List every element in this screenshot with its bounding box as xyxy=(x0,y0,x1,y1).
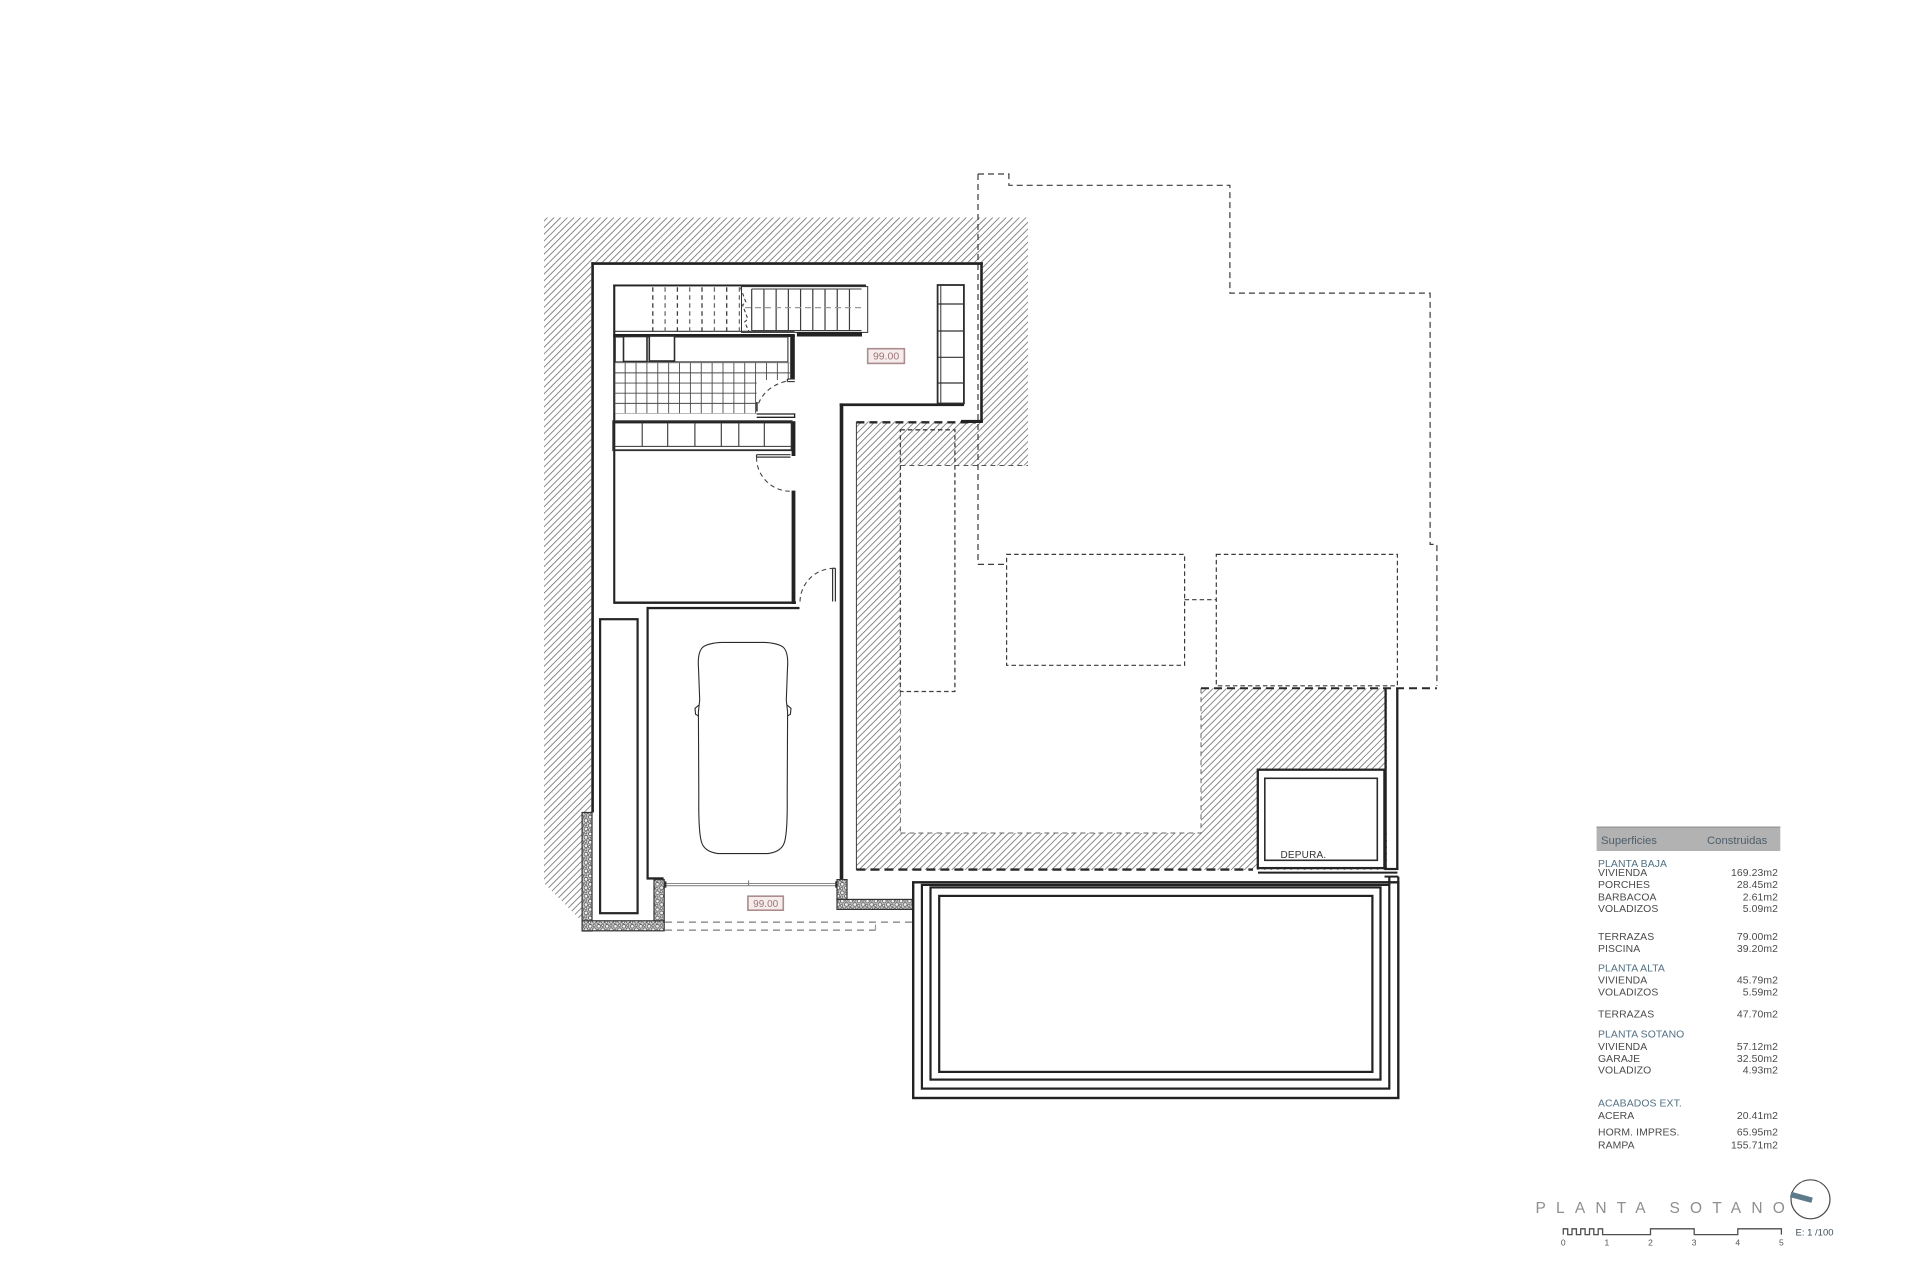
svg-text:VOLADIZOS: VOLADIZOS xyxy=(1598,988,1658,999)
svg-text:ACABADOS EXT.: ACABADOS EXT. xyxy=(1598,1099,1682,1110)
svg-text:PLANTA ALTA: PLANTA ALTA xyxy=(1598,964,1665,975)
svg-text:28.45m2: 28.45m2 xyxy=(1737,880,1778,891)
svg-text:ACERA: ACERA xyxy=(1598,1111,1634,1122)
svg-text:2.61m2: 2.61m2 xyxy=(1743,893,1778,904)
svg-text:5: 5 xyxy=(1779,1238,1784,1248)
svg-text:Construidas: Construidas xyxy=(1707,835,1768,847)
svg-text:PISCINA: PISCINA xyxy=(1598,944,1640,955)
svg-text:45.79m2: 45.79m2 xyxy=(1737,976,1778,987)
svg-text:99.00: 99.00 xyxy=(753,899,778,910)
svg-text:79.00m2: 79.00m2 xyxy=(1737,932,1778,943)
svg-text:VOLADIZOS: VOLADIZOS xyxy=(1598,904,1658,915)
svg-text:TERRAZAS: TERRAZAS xyxy=(1598,1010,1654,1021)
svg-text:4: 4 xyxy=(1735,1238,1740,1248)
svg-text:HORM. IMPRES.: HORM. IMPRES. xyxy=(1598,1128,1680,1139)
svg-text:1: 1 xyxy=(1605,1238,1610,1248)
svg-text:155.71m2: 155.71m2 xyxy=(1731,1140,1778,1151)
svg-text:PORCHES: PORCHES xyxy=(1598,880,1650,891)
svg-text:3: 3 xyxy=(1692,1238,1697,1248)
svg-text:VIVIENDA: VIVIENDA xyxy=(1598,976,1647,987)
svg-text:99.00: 99.00 xyxy=(873,351,899,363)
svg-text:4.93m2: 4.93m2 xyxy=(1743,1065,1778,1076)
svg-text:E: 1 /100: E: 1 /100 xyxy=(1796,1228,1834,1239)
svg-text:PLANTA SOTANO: PLANTA SOTANO xyxy=(1598,1029,1684,1040)
svg-text:65.95m2: 65.95m2 xyxy=(1737,1128,1778,1139)
svg-text:PLANTA SOTANO: PLANTA SOTANO xyxy=(1536,1200,1796,1217)
svg-text:2: 2 xyxy=(1648,1238,1653,1248)
svg-text:57.12m2: 57.12m2 xyxy=(1737,1042,1778,1053)
svg-text:5.59m2: 5.59m2 xyxy=(1743,988,1778,999)
svg-text:RAMPA: RAMPA xyxy=(1598,1140,1635,1151)
svg-text:47.70m2: 47.70m2 xyxy=(1737,1010,1778,1021)
svg-text:VIVIENDA: VIVIENDA xyxy=(1598,1042,1647,1053)
svg-text:DEPURA.: DEPURA. xyxy=(1281,850,1327,861)
svg-text:169.23m2: 169.23m2 xyxy=(1731,868,1778,879)
svg-text:Superficies: Superficies xyxy=(1601,835,1657,847)
svg-text:39.20m2: 39.20m2 xyxy=(1737,944,1778,955)
svg-text:BARBACOA: BARBACOA xyxy=(1598,893,1657,904)
svg-text:GARAJE: GARAJE xyxy=(1598,1054,1640,1065)
svg-text:5.09m2: 5.09m2 xyxy=(1743,904,1778,915)
svg-text:VIVIENDA: VIVIENDA xyxy=(1598,868,1647,879)
svg-text:VOLADIZO: VOLADIZO xyxy=(1598,1065,1651,1076)
svg-text:20.41m2: 20.41m2 xyxy=(1737,1111,1778,1122)
svg-text:TERRAZAS: TERRAZAS xyxy=(1598,932,1654,943)
svg-text:32.50m2: 32.50m2 xyxy=(1737,1054,1778,1065)
svg-text:0: 0 xyxy=(1561,1238,1566,1248)
